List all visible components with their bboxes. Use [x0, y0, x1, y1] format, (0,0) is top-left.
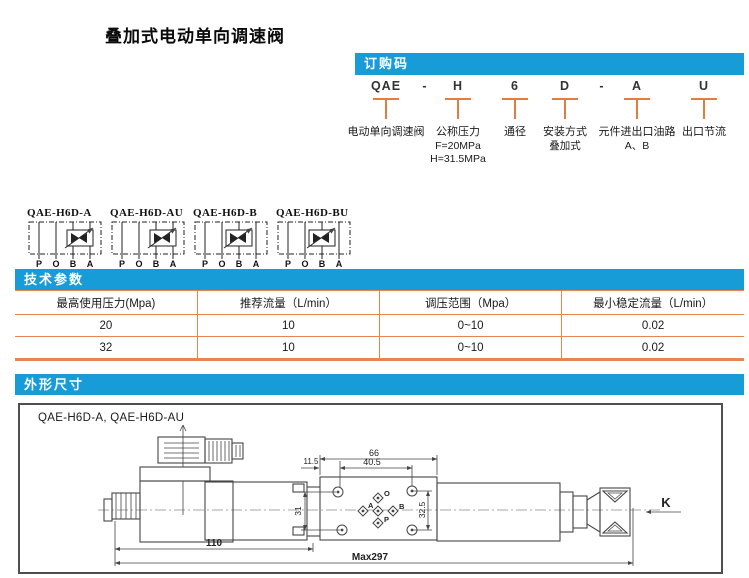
dim-hole-span: 40.5	[363, 457, 381, 467]
table-cell: 20	[15, 315, 197, 337]
code-part: U	[699, 79, 709, 93]
svg-text:P: P	[119, 259, 125, 269]
port-label-b: B	[399, 502, 405, 511]
specs-header: 技术参数	[15, 269, 744, 290]
svg-text:O: O	[52, 259, 59, 269]
code-part: H	[453, 79, 463, 93]
view-label-k: K	[661, 495, 671, 510]
table-cell: 0.02	[562, 337, 744, 360]
svg-text:O: O	[218, 259, 225, 269]
table-row: 20 10 0~10 0.02	[15, 315, 744, 337]
port-label-a: A	[368, 501, 374, 510]
svg-text:P: P	[36, 259, 42, 269]
valve-symbol-label: QAE-H6D-BU	[276, 207, 360, 219]
code-part: D	[560, 79, 570, 93]
table-cell: 0.02	[562, 315, 744, 337]
svg-text:B: B	[153, 259, 160, 269]
code-part: QAE	[371, 79, 401, 93]
code-part: 6	[511, 79, 519, 93]
column-header: 最小稳定流量（L/min）	[562, 291, 744, 315]
valve-symbol-b: QAE-H6D-B PO BA	[193, 207, 277, 274]
code-separator: -	[422, 79, 427, 93]
code-separator: -	[599, 79, 604, 93]
table-row: 32 10 0~10 0.02	[15, 337, 744, 360]
code-label-outlet-throttle: 出口节流	[634, 122, 749, 140]
svg-text:B: B	[70, 259, 77, 269]
svg-text:O: O	[135, 259, 142, 269]
hydraulic-symbol-drawing: PO BA	[110, 219, 188, 269]
specs-table: 最高使用压力(Mpa) 推荐流量（L/min） 调压范围（Mpa） 最小稳定流量…	[15, 290, 744, 361]
outline-dimension-drawing: O A B P	[18, 403, 723, 572]
ordering-code-header: 订购码	[355, 53, 744, 75]
dim-edge-offset: 11.5	[304, 457, 320, 466]
hydraulic-symbol-drawing: PO BA	[276, 219, 354, 269]
svg-text:B: B	[236, 259, 243, 269]
svg-text:O: O	[301, 259, 308, 269]
svg-text:A: A	[170, 259, 177, 269]
table-cell: 10	[197, 337, 379, 360]
dim-left-height: 31	[293, 506, 303, 516]
code-part: A	[632, 79, 642, 93]
code-connector	[624, 98, 650, 120]
valve-symbol-label: QAE-H6D-AU	[110, 207, 194, 219]
page-title: 叠加式电动单向调速阀	[105, 22, 285, 47]
outline-header: 外形尺寸	[15, 374, 744, 395]
port-label-p: P	[384, 515, 389, 524]
code-connector	[373, 98, 399, 120]
hydraulic-symbol-drawing: PO BA	[27, 219, 105, 269]
table-cell: 10	[197, 315, 379, 337]
svg-text:A: A	[87, 259, 94, 269]
svg-text:A: A	[253, 259, 260, 269]
code-connector	[552, 98, 578, 120]
code-connector	[502, 98, 528, 120]
valve-symbol-a: QAE-H6D-A PO BA	[27, 207, 111, 274]
port-label-o: O	[384, 489, 390, 498]
valve-symbol-au: QAE-H6D-AU PO BA	[110, 207, 194, 274]
valve-symbol-label: QAE-H6D-A	[27, 207, 111, 219]
catalog-page: 叠加式电动单向调速阀 订购码 QAE - H 6 D - A U 电动单向调速阀…	[0, 0, 749, 578]
dim-max-length: Max297	[352, 552, 389, 563]
dim-body-length: 110	[206, 538, 223, 549]
code-connector	[445, 98, 471, 120]
specs-header-row: 最高使用压力(Mpa) 推荐流量（L/min） 调压范围（Mpa） 最小稳定流量…	[15, 291, 744, 315]
valve-symbol-label: QAE-H6D-B	[193, 207, 277, 219]
svg-text:P: P	[285, 259, 291, 269]
code-connector	[691, 98, 717, 120]
column-header: 调压范围（Mpa）	[380, 291, 562, 315]
svg-text:P: P	[202, 259, 208, 269]
svg-text:A: A	[336, 259, 343, 269]
svg-text:B: B	[319, 259, 326, 269]
column-header: 推荐流量（L/min）	[197, 291, 379, 315]
dim-right-height: 32.5	[417, 501, 427, 518]
valve-symbol-bu: QAE-H6D-BU PO BA	[276, 207, 360, 274]
hydraulic-symbol-drawing: PO BA	[193, 219, 271, 269]
table-cell: 0~10	[380, 315, 562, 337]
column-header: 最高使用压力(Mpa)	[15, 291, 197, 315]
table-cell: 32	[15, 337, 197, 360]
table-cell: 0~10	[380, 337, 562, 360]
